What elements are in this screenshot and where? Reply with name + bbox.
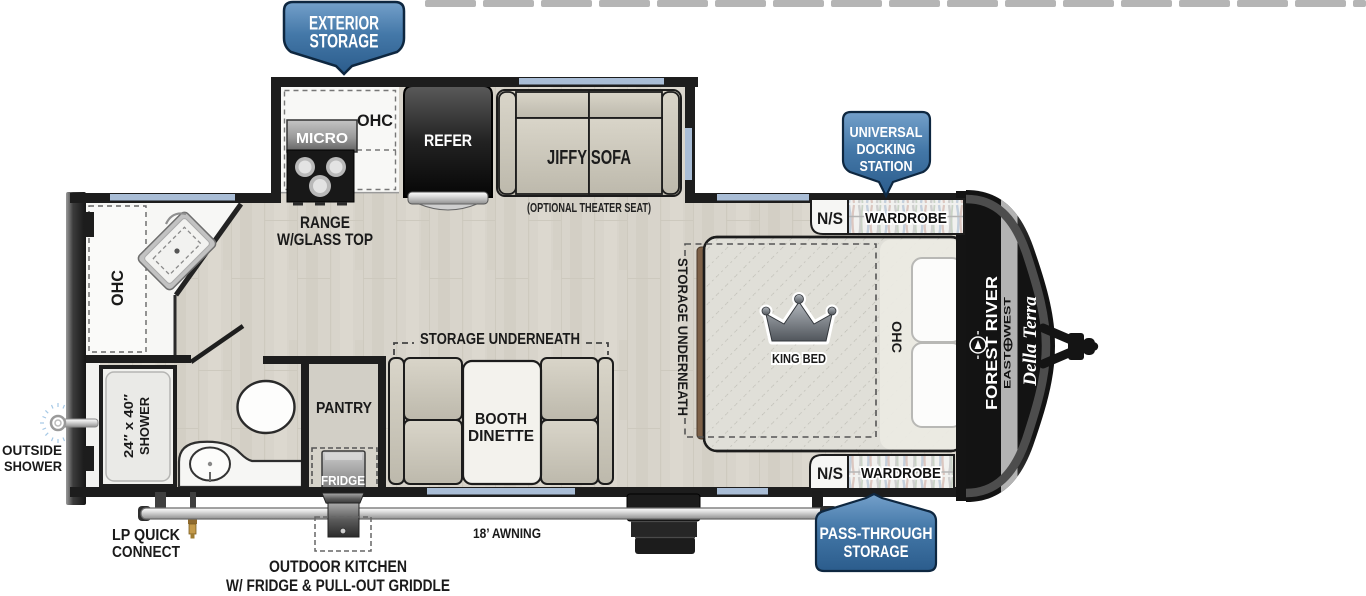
svg-text:STORAGE UNDERNEATH: STORAGE UNDERNEATH bbox=[675, 258, 690, 416]
svg-text:N/S: N/S bbox=[817, 464, 843, 483]
svg-text:(OPTIONAL THEATER SEAT): (OPTIONAL THEATER SEAT) bbox=[527, 201, 651, 215]
svg-text:N/S: N/S bbox=[817, 209, 843, 228]
svg-text:PASS-THROUGH: PASS-THROUGH bbox=[820, 524, 933, 543]
svg-text:DOCKING: DOCKING bbox=[857, 141, 916, 158]
svg-text:W/ FRIDGE & PULL-OUT GRIDDLE: W/ FRIDGE & PULL-OUT GRIDDLE bbox=[226, 576, 450, 595]
svg-text:KING BED: KING BED bbox=[772, 351, 826, 366]
svg-text:DINETTE: DINETTE bbox=[468, 428, 534, 445]
svg-text:PANTRY: PANTRY bbox=[316, 400, 372, 417]
svg-text:STORAGE: STORAGE bbox=[310, 32, 379, 53]
svg-text:24″ x 40″: 24″ x 40″ bbox=[121, 394, 136, 458]
svg-text:REFER: REFER bbox=[424, 131, 472, 150]
svg-text:UNIVERSAL: UNIVERSAL bbox=[850, 124, 923, 141]
svg-text:EAST⨁WEST: EAST⨁WEST bbox=[1003, 296, 1013, 389]
svg-text:STORAGE UNDERNEATH: STORAGE UNDERNEATH bbox=[420, 331, 580, 348]
svg-text:18’ AWNING: 18’ AWNING bbox=[473, 525, 541, 541]
svg-text:OUTDOOR KITCHEN: OUTDOOR KITCHEN bbox=[269, 557, 407, 576]
svg-text:W/GLASS TOP: W/GLASS TOP bbox=[277, 230, 373, 249]
svg-text:JIFFY SOFA: JIFFY SOFA bbox=[547, 147, 631, 169]
svg-text:STATION: STATION bbox=[860, 158, 913, 175]
svg-text:OHC: OHC bbox=[357, 111, 393, 130]
svg-text:MICRO: MICRO bbox=[296, 130, 348, 147]
svg-text:SHOWER: SHOWER bbox=[4, 458, 62, 474]
svg-text:STORAGE: STORAGE bbox=[844, 542, 909, 561]
svg-text:OHC: OHC bbox=[889, 321, 905, 353]
svg-text:LP QUICK: LP QUICK bbox=[112, 527, 180, 544]
svg-text:SHOWER: SHOWER bbox=[137, 396, 152, 455]
svg-text:OHC: OHC bbox=[108, 270, 127, 306]
svg-text:FRIDGE: FRIDGE bbox=[321, 474, 365, 488]
svg-text:WARDROBE: WARDROBE bbox=[865, 210, 947, 227]
svg-text:OUTSIDE: OUTSIDE bbox=[2, 442, 62, 458]
svg-text:Della Terra: Della Terra bbox=[1020, 296, 1041, 387]
svg-text:BOOTH: BOOTH bbox=[475, 411, 527, 428]
svg-text:CONNECT: CONNECT bbox=[112, 544, 180, 561]
svg-text:WARDROBE: WARDROBE bbox=[861, 465, 941, 482]
svg-text:FOREST RIVER: FOREST RIVER bbox=[984, 275, 1001, 410]
